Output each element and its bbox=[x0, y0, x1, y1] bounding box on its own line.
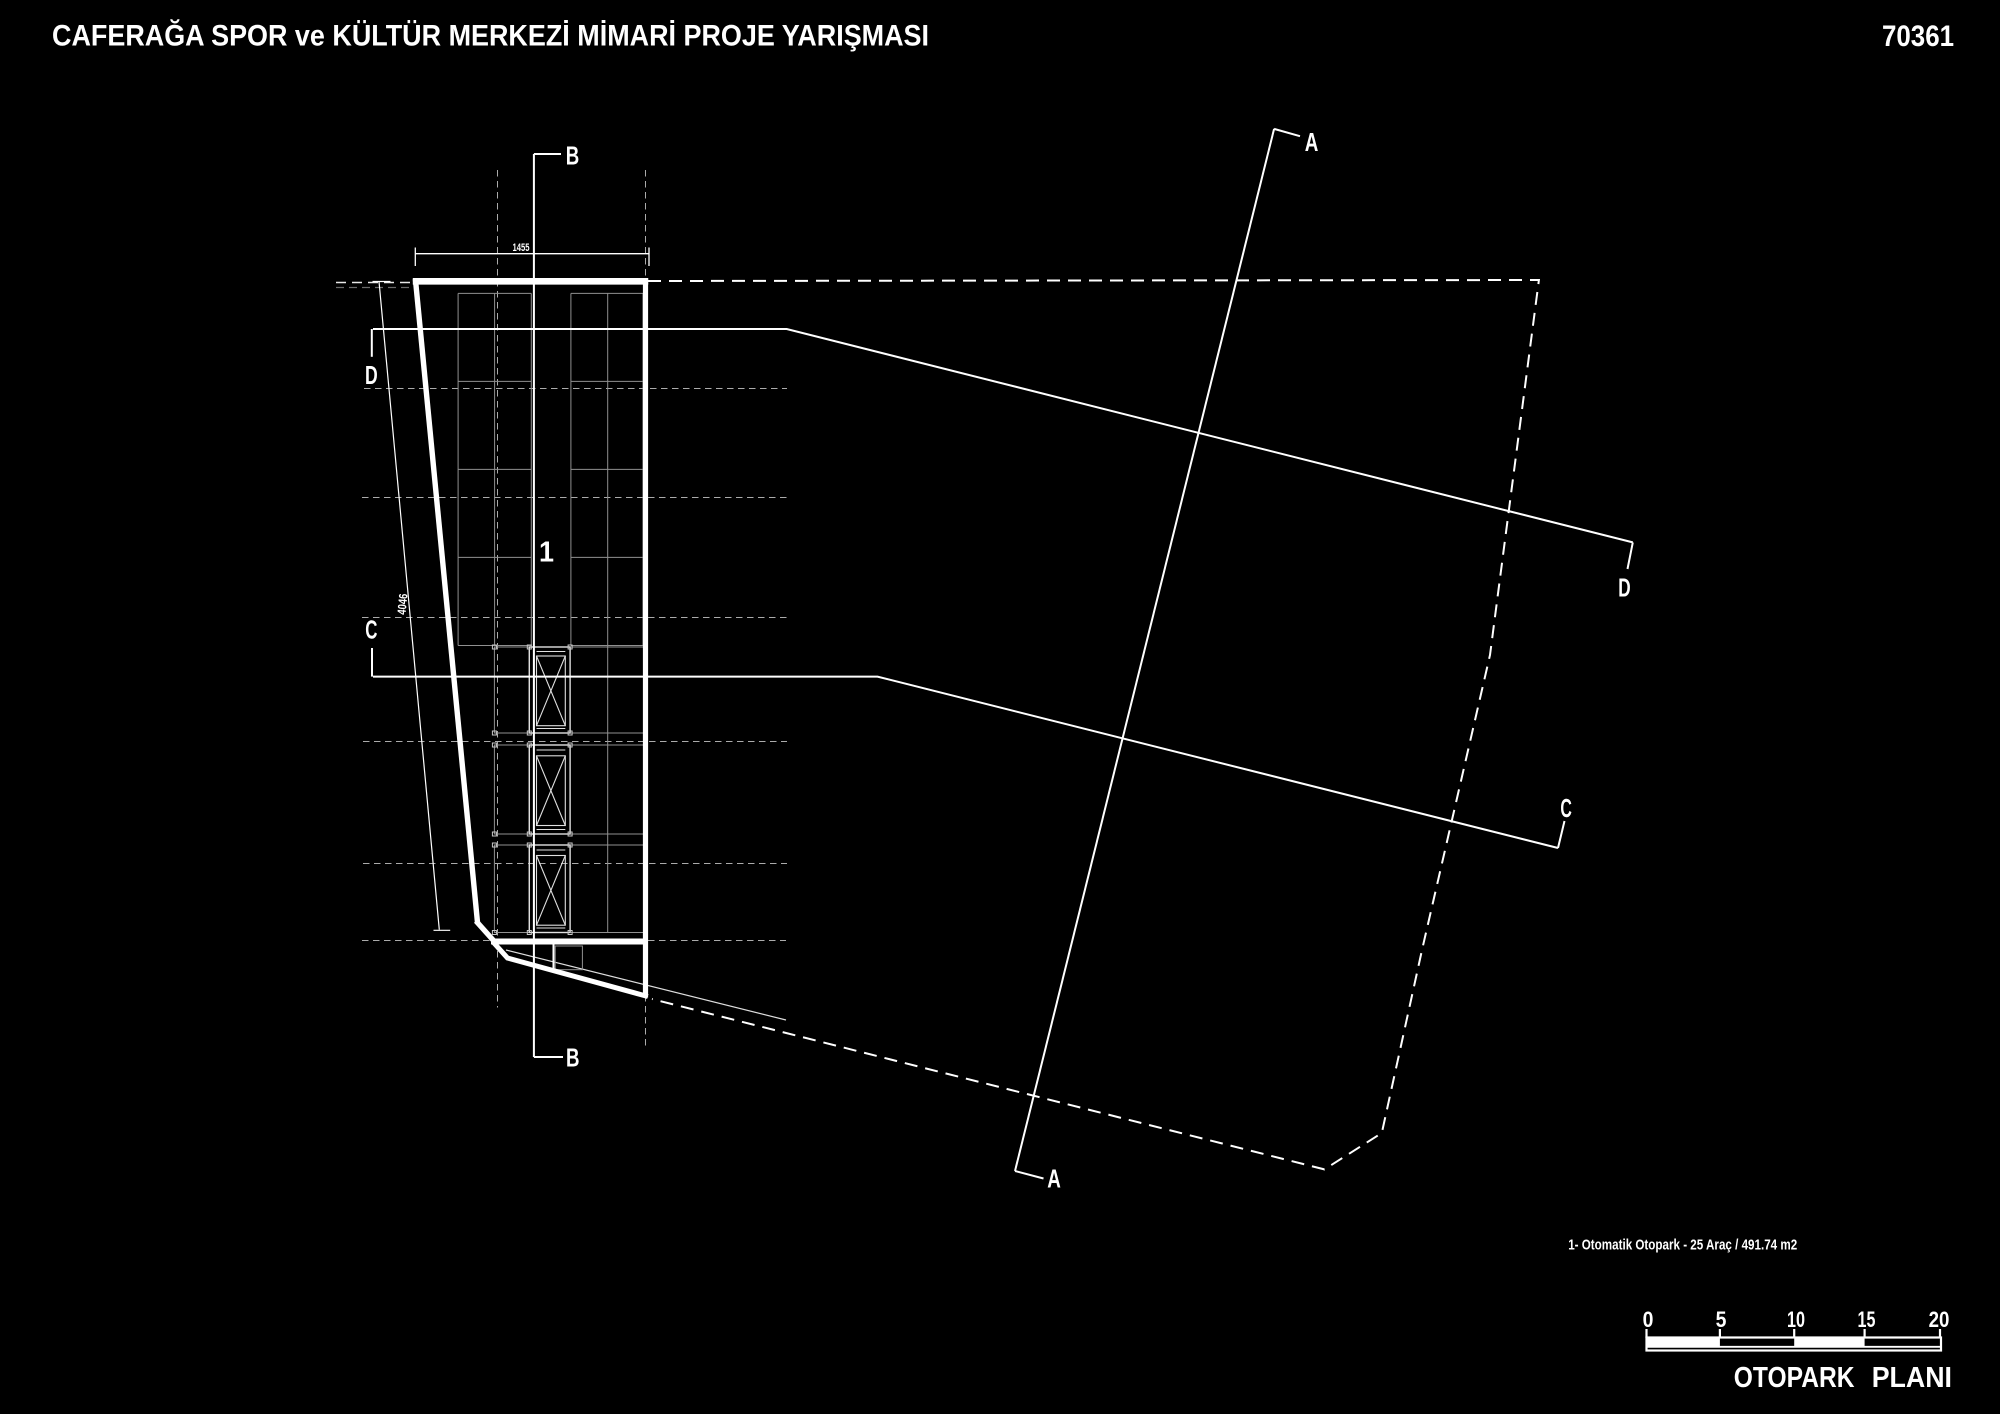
svg-text:1455: 1455 bbox=[513, 242, 530, 254]
svg-text:C: C bbox=[1560, 795, 1572, 823]
svg-text:A: A bbox=[1047, 1166, 1061, 1194]
svg-text:1- Otomatik Otopark - 25 Araç: 1- Otomatik Otopark - 25 Araç / 491.74 m… bbox=[1568, 1237, 1797, 1254]
svg-text:A: A bbox=[1305, 129, 1319, 157]
svg-text:20: 20 bbox=[1929, 1307, 1950, 1332]
svg-text:D: D bbox=[1618, 575, 1630, 603]
svg-text:B: B bbox=[566, 143, 580, 171]
svg-text:5: 5 bbox=[1716, 1307, 1727, 1332]
svg-text:1: 1 bbox=[539, 537, 554, 569]
svg-text:C: C bbox=[365, 617, 377, 645]
svg-text:0: 0 bbox=[1643, 1307, 1654, 1332]
svg-text:15: 15 bbox=[1858, 1307, 1876, 1332]
svg-text:D: D bbox=[365, 362, 378, 390]
svg-text:PLANI: PLANI bbox=[1872, 1362, 1952, 1394]
svg-text:B: B bbox=[566, 1045, 580, 1073]
svg-text:CAFERAĞA SPOR ve KÜLTÜR MERKEZ: CAFERAĞA SPOR ve KÜLTÜR MERKEZİ MİMARİ P… bbox=[52, 18, 929, 52]
svg-text:OTOPARK: OTOPARK bbox=[1734, 1362, 1855, 1394]
svg-text:70361: 70361 bbox=[1882, 20, 1954, 53]
svg-text:10: 10 bbox=[1787, 1307, 1805, 1332]
svg-text:4046: 4046 bbox=[395, 593, 411, 615]
